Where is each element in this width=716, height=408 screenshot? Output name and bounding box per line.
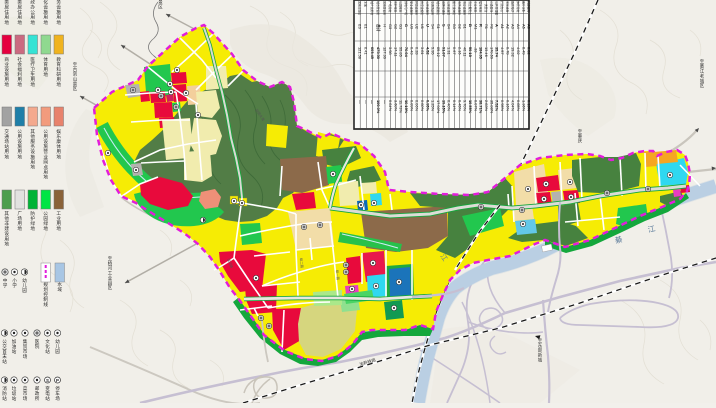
svg-text:区: 区	[108, 285, 113, 290]
svg-text:站: 站	[45, 348, 50, 355]
svg-text:学: 学	[12, 282, 17, 288]
svg-text:纵二路: 纵二路	[299, 258, 305, 269]
svg-text:业: 业	[4, 61, 9, 67]
svg-text:用: 用	[382, 12, 386, 15]
svg-text:地: 地	[516, 9, 520, 12]
svg-text:服: 服	[495, 12, 499, 15]
svg-text:庆: 庆	[578, 138, 583, 145]
svg-text:业: 业	[468, 12, 472, 15]
svg-text:站: 站	[2, 358, 7, 365]
svg-text:用: 用	[420, 12, 424, 15]
svg-text:地: 地	[4, 153, 9, 159]
svg-text:用: 用	[457, 12, 461, 15]
svg-text:生: 生	[521, 9, 525, 12]
svg-text:用: 用	[409, 12, 413, 15]
svg-text:利: 利	[527, 9, 531, 12]
svg-text:住: 住	[484, 9, 488, 12]
svg-text:住: 住	[489, 9, 493, 12]
svg-text:地: 地	[473, 9, 477, 12]
svg-text:地: 地	[370, 12, 374, 15]
svg-text:站: 站	[2, 395, 7, 402]
svg-text:S: S	[46, 378, 49, 383]
svg-text:所: 所	[35, 395, 40, 402]
svg-text:住: 住	[4, 9, 9, 15]
svg-text:地: 地	[56, 19, 61, 25]
svg-text:场: 场	[55, 395, 60, 402]
svg-text:用: 用	[415, 12, 419, 15]
svg-text:用: 用	[425, 12, 429, 15]
svg-text:地: 地	[56, 81, 61, 87]
svg-text:地: 地	[4, 19, 9, 25]
svg-text:纵一路: 纵一路	[335, 270, 341, 281]
svg-text:地: 地	[30, 225, 35, 231]
svg-text:利: 利	[17, 71, 22, 77]
svg-text:院: 院	[35, 343, 40, 350]
svg-text:场: 场	[23, 353, 28, 360]
svg-text:地: 地	[30, 19, 35, 25]
svg-text:垃: 垃	[12, 385, 17, 391]
svg-text:地: 地	[17, 153, 22, 159]
svg-text:用: 用	[441, 12, 445, 15]
svg-text:地: 地	[388, 9, 392, 12]
svg-text:站: 站	[12, 348, 17, 355]
svg-text:地: 地	[43, 19, 48, 25]
svg-text:域: 域	[57, 286, 62, 292]
svg-text:施: 施	[505, 9, 509, 12]
svg-text:站: 站	[12, 395, 17, 402]
svg-text:地: 地	[393, 9, 397, 12]
svg-text:地: 地	[56, 225, 61, 231]
svg-text:用: 用	[431, 12, 435, 15]
svg-text:地: 地	[43, 174, 48, 180]
svg-text:地: 地	[17, 19, 22, 25]
svg-text:绿: 绿	[30, 220, 35, 226]
svg-text:用: 用	[452, 12, 456, 15]
svg-text:公: 公	[500, 9, 504, 12]
svg-text:绿: 绿	[43, 220, 48, 226]
svg-text:0.13%: 0.13%	[527, 100, 532, 112]
svg-text:地: 地	[4, 81, 9, 87]
svg-text:学: 学	[3, 282, 8, 288]
svg-text:P: P	[56, 378, 59, 383]
svg-text:A6: A6	[527, 24, 532, 29]
svg-text:城: 城	[538, 356, 543, 363]
svg-text:0.02: 0.02	[527, 47, 532, 55]
svg-text:住: 住	[17, 9, 22, 15]
svg-text:区: 区	[73, 86, 78, 91]
svg-text:康: 康	[56, 138, 61, 144]
svg-text:用: 用	[436, 12, 440, 15]
svg-text:用: 用	[463, 12, 467, 15]
svg-text:场: 场	[404, 12, 408, 15]
svg-text:水: 水	[57, 281, 62, 287]
svg-text:场: 场	[23, 395, 28, 402]
svg-text:地: 地	[479, 9, 483, 12]
svg-text:地: 地	[30, 163, 35, 169]
svg-text:区: 区	[158, 4, 163, 9]
svg-text:地: 地	[4, 240, 9, 246]
svg-text:域: 域	[364, 4, 368, 7]
svg-text:地: 地	[56, 153, 61, 159]
svg-text:地: 地	[43, 225, 48, 231]
svg-text:地: 地	[17, 81, 22, 87]
svg-text:生: 生	[30, 71, 35, 77]
svg-text:站: 站	[45, 395, 50, 402]
svg-text:营: 营	[447, 12, 451, 15]
svg-text:线: 线	[43, 301, 48, 307]
svg-text:区: 区	[700, 83, 705, 88]
svg-text:用: 用	[376, 12, 380, 15]
svg-text:地: 地	[30, 81, 35, 87]
svg-text:地: 地	[17, 225, 22, 231]
svg-text:设: 设	[358, 12, 362, 15]
svg-text:地: 地	[43, 71, 48, 77]
svg-text:地: 地	[399, 9, 403, 12]
